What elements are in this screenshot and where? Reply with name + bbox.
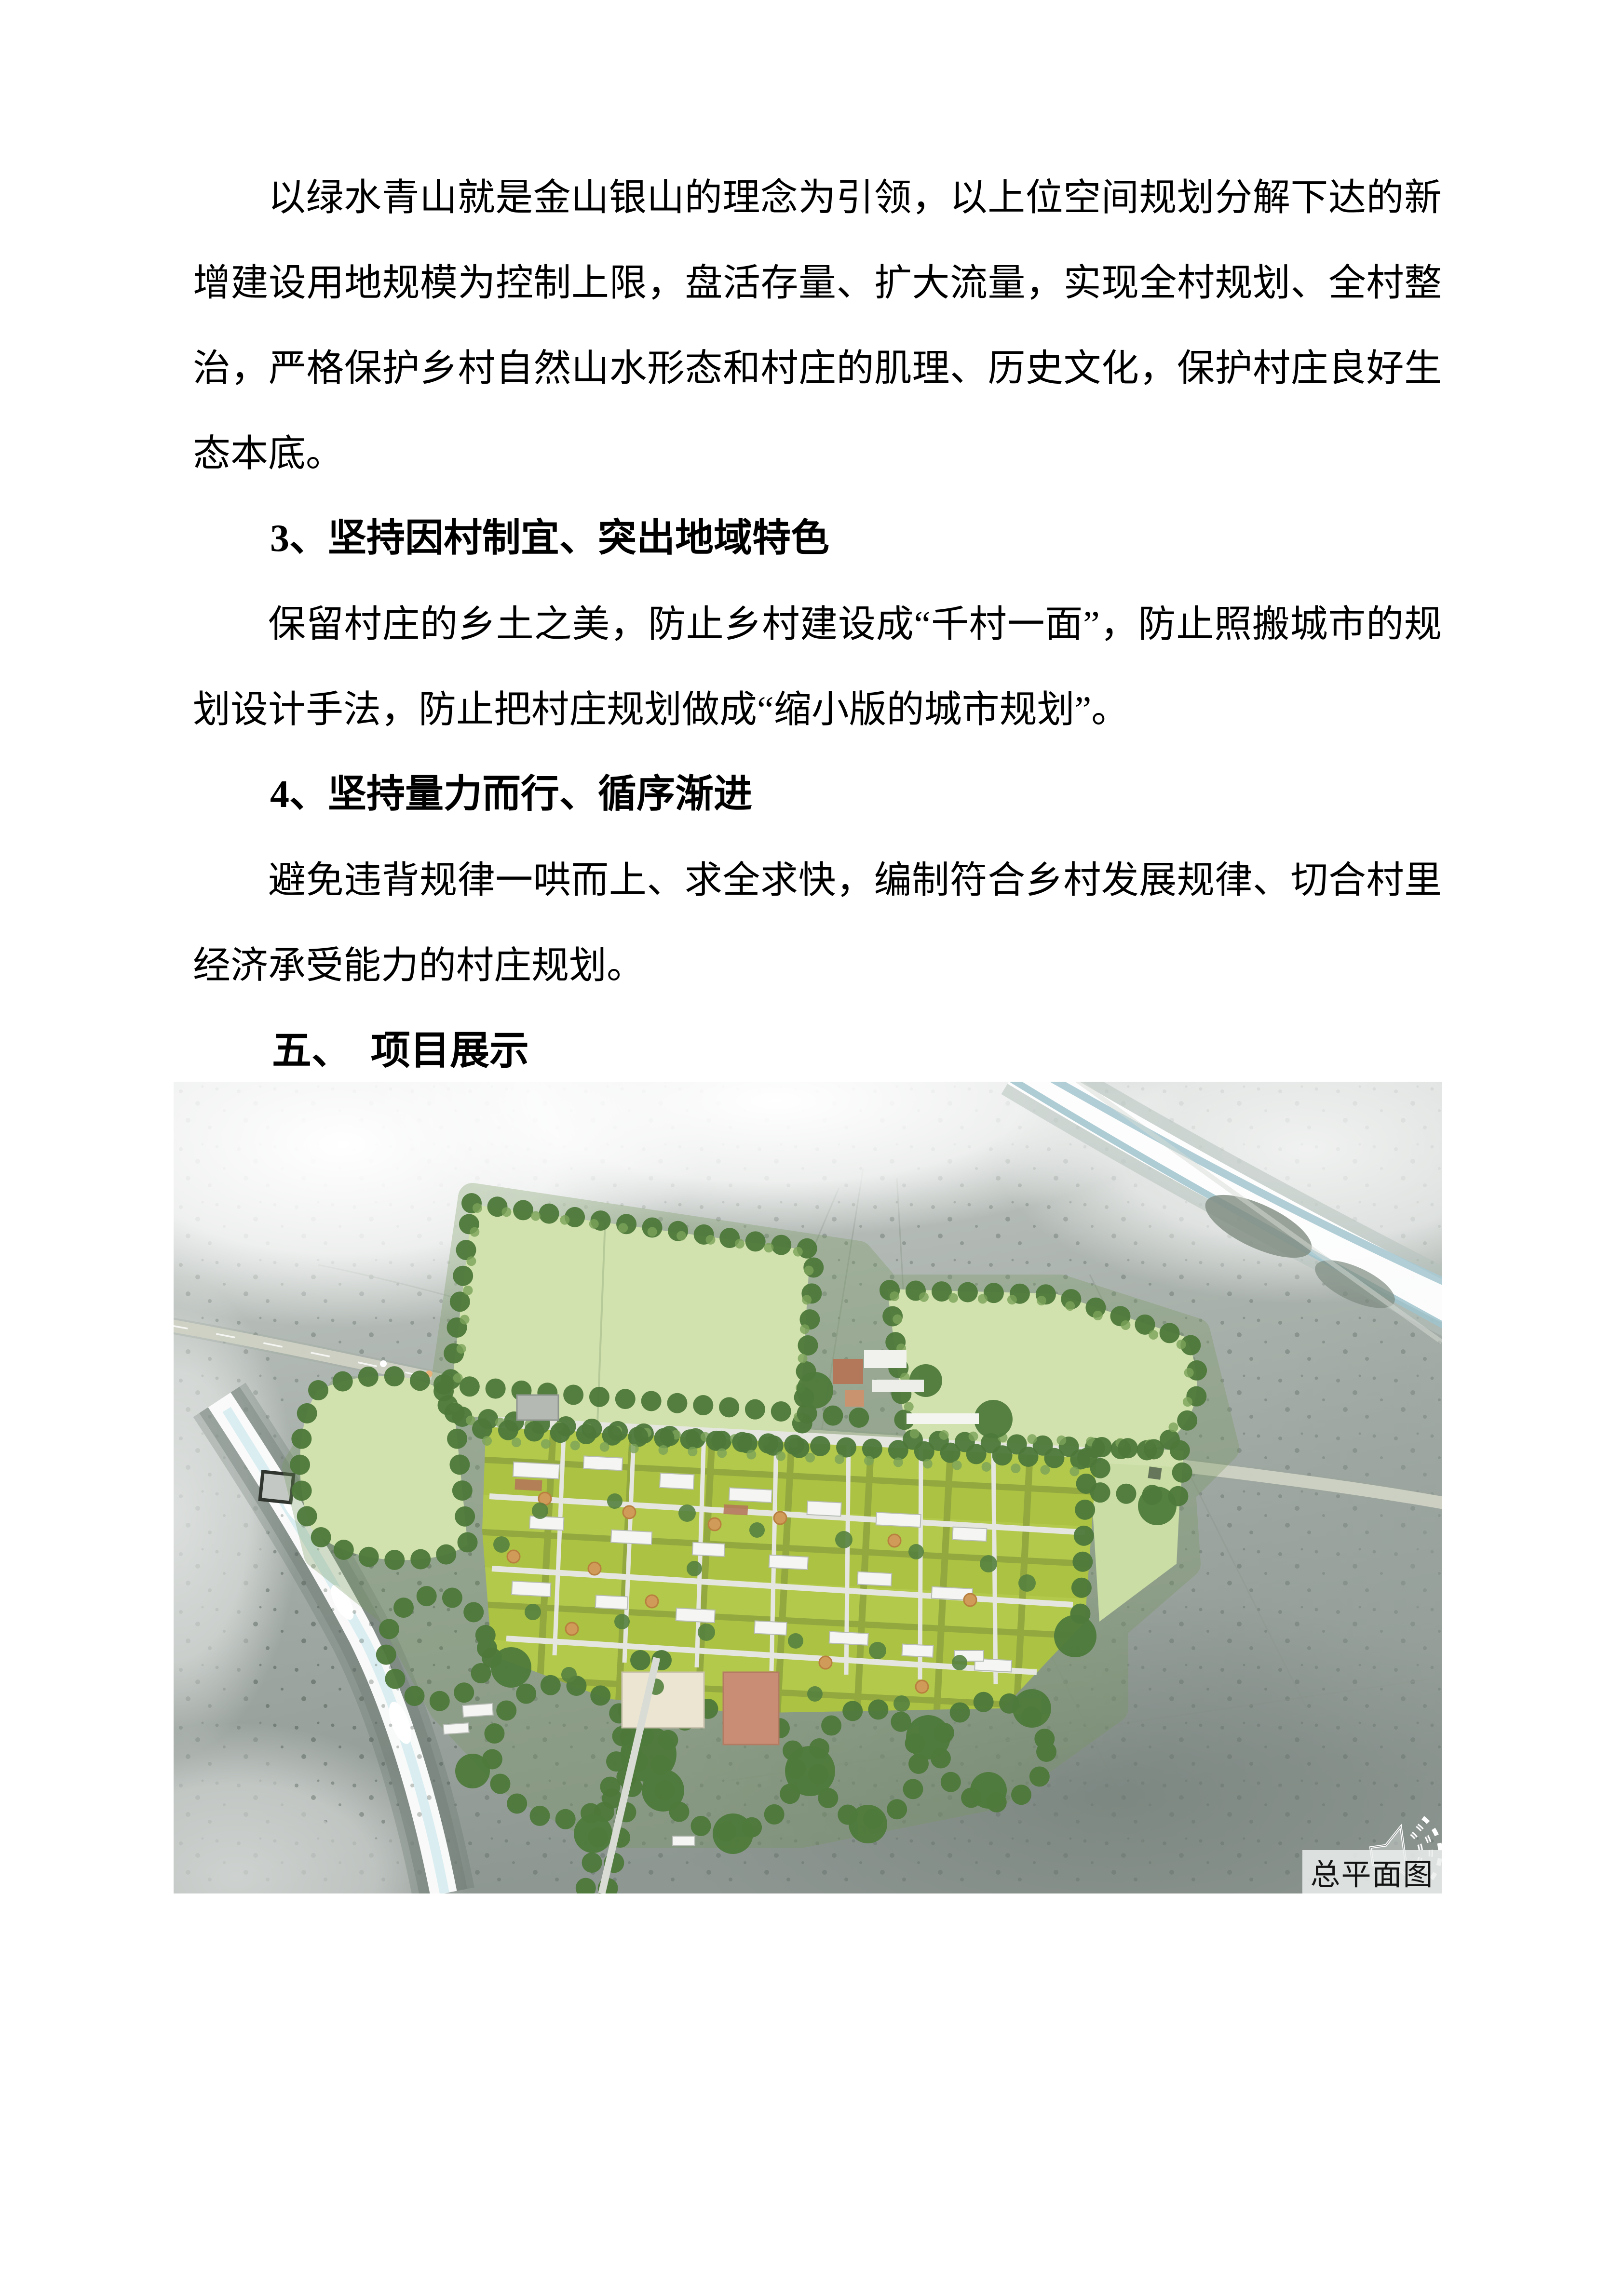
heading-point-3: 3、坚持因村制宜、突出地域特色 bbox=[193, 496, 1442, 581]
document-page: { "document": { "paragraph_green_water":… bbox=[0, 0, 1624, 2296]
paragraph-point-3: 保留村庄的乡土之美，防止乡村建设成“千村一面”，防止照搬城市的规划设计手法，防止… bbox=[193, 581, 1442, 752]
site-plan-figure: 总平面图 bbox=[174, 1082, 1442, 1893]
vehicle-dot bbox=[380, 1360, 387, 1367]
figure-caption: 总平面图 bbox=[1302, 1850, 1442, 1893]
document-body: 以绿水青山就是金山银山的理念为引领，以上位空间规划分解下达的新增建设用地规模为控… bbox=[193, 155, 1442, 1093]
paragraph-green-water: 以绿水青山就是金山银山的理念为引领，以上位空间规划分解下达的新增建设用地规模为控… bbox=[193, 155, 1442, 496]
plaza bbox=[723, 1672, 779, 1745]
figure-caption-text: 总平面图 bbox=[1310, 1850, 1434, 1893]
heading-section-5: 五、 项目展示 bbox=[193, 1008, 1442, 1093]
large-cream-building bbox=[622, 1672, 704, 1728]
heading-point-4: 4、坚持量力而行、循序渐进 bbox=[193, 752, 1442, 837]
site-plan-image bbox=[174, 1082, 1442, 1893]
paragraph-point-4: 避免违背规律一哄而上、求全求快，编制符合乡村发展规律、切合村里经济承受能力的村庄… bbox=[193, 837, 1442, 1008]
parking-lot bbox=[517, 1395, 558, 1420]
